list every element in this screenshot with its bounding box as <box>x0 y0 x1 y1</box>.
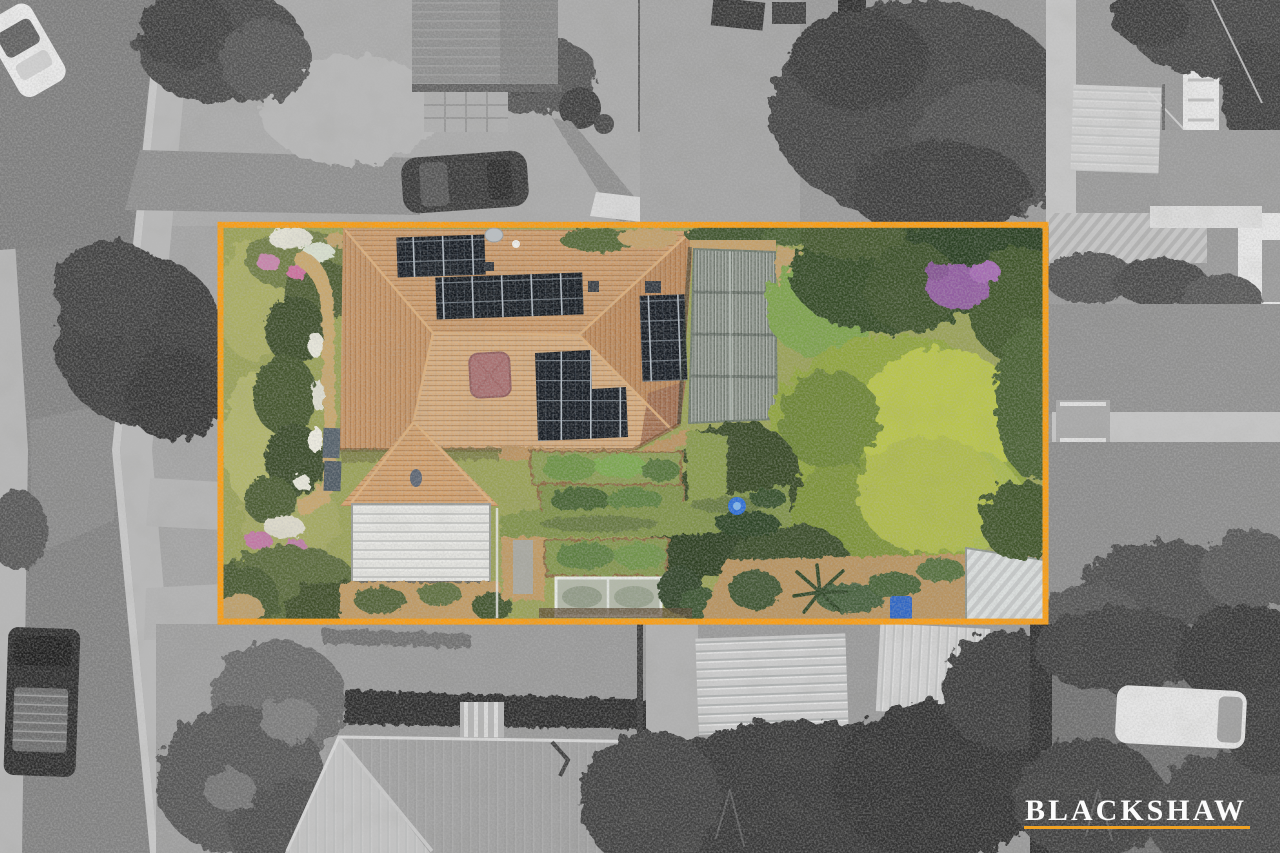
svg-text:BLACKSHAW: BLACKSHAW <box>1025 794 1247 827</box>
